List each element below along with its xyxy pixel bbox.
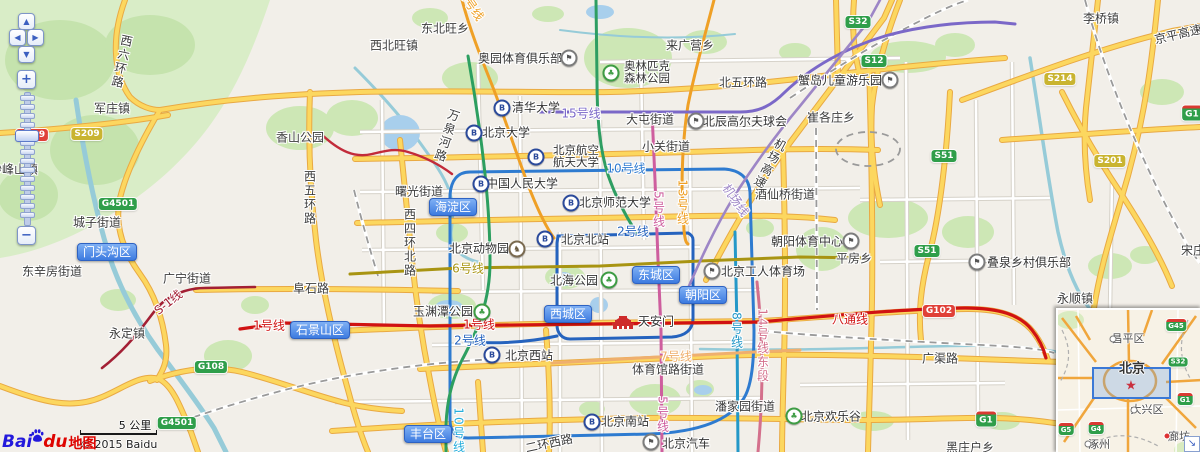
place-label: 小关街道 [642,138,690,155]
road-label: 阜石路 [293,280,329,297]
poi-label[interactable]: 奥园体育俱乐部 [478,50,562,67]
poi-subway-icon[interactable]: B [473,176,490,193]
inset-place-marker [1085,441,1092,448]
subway-line-label: 5号线 [655,396,672,434]
poi-label[interactable]: 北京汽车 [662,435,710,452]
poi-subway-icon[interactable]: B [528,149,545,166]
pan-down-button[interactable]: ▼ [18,46,35,63]
pan-left-button[interactable]: ◀ [9,29,26,46]
zoom-slider-tick [20,113,35,119]
place-label: 黑庄户乡 [946,439,994,452]
baidu-logo: Bai du 地图 [2,429,97,451]
poi-label[interactable]: 朝阳体育中心 [771,233,843,250]
inset-road-shield: G1 [1178,393,1193,405]
place-label: 来广营乡 [666,37,714,54]
subway-line-label: 15号线 [561,105,600,122]
poi-label[interactable]: 玉渊潭公园 [413,303,473,320]
zoom-slider-tick [20,158,35,164]
place-label: 酒仙桥街道 [755,186,815,203]
pan-up-button[interactable]: ▲ [18,13,35,30]
place-label: 东北旺乡 [421,20,469,37]
subway-line-label: 13号线 [675,179,692,226]
road-label: 西四环北路 [402,208,419,278]
road-label: 西五环路 [302,170,319,226]
poi-park-icon[interactable]: ♣ [601,272,618,289]
district-badge[interactable]: 石景山区 [290,321,350,339]
zoom-slider-tick [20,149,35,155]
place-label: 城子街道 [73,214,121,231]
place-label: 潘家园街道 [715,398,775,415]
place-label: 东辛房街道 [22,263,82,280]
poi-label[interactable]: 北京航空航天大学 [553,144,599,168]
place-label: 李桥镇 [1083,10,1119,27]
inset-collapse-button[interactable]: ↘ [1184,436,1200,452]
poi-label[interactable]: 北京西站 [505,347,553,364]
poi-label[interactable]: 北京南站 [601,413,649,430]
poi-flag-icon[interactable]: ⚑ [843,233,860,250]
road-shield: S209 [71,128,102,140]
zoom-slider-tick [20,212,35,218]
inset-road-shield: S32 [1169,358,1188,367]
inset-place-marker [1110,336,1117,343]
place-label: 永顺镇 [1057,290,1093,307]
overview-inset[interactable]: 北京★昌平区大兴区涿州廊坊G45S32G1G5G4 ↘ [1056,308,1200,452]
poi-park-icon[interactable]: ♣ [474,304,491,321]
logo-text-du: du [43,434,67,451]
poi-flag-icon[interactable]: ⚑ [882,72,899,89]
road-label: 北五环路 [719,74,767,91]
district-badge[interactable]: 朝阳区 [679,286,727,304]
place-label: 广宁街道 [163,270,211,287]
road-shield: G108 [195,361,227,373]
poi-label[interactable]: 北海公园 [550,272,598,289]
poi-flag-icon[interactable]: ⚑ [969,254,986,271]
poi-label[interactable]: 北京北站 [561,231,609,248]
logo-text-bai: Bai [2,434,32,451]
subway-line-label: 14号线东段 [755,308,772,383]
place-label: 大屯街道 [626,111,674,128]
place-label: 军庄镇 [94,100,130,117]
inset-road-shield: G45 [1166,319,1186,331]
poi-subway-icon[interactable]: B [466,125,483,142]
zoom-slider-tick [20,167,35,173]
subway-line-label: 10号线 [451,407,468,452]
poi-subway-icon[interactable]: B [563,195,580,212]
road-shield: G102 [923,305,955,317]
poi-flag-icon[interactable]: ⚑ [688,113,705,130]
poi-subway-icon[interactable]: B [494,100,511,117]
pan-right-button[interactable]: ▶ [27,29,44,46]
poi-label[interactable]: 蟹岛儿童游乐园 [798,72,882,89]
inset-road-shield: G5 [1059,423,1074,435]
zoom-slider-tick [20,176,35,182]
poi-flag-icon[interactable]: ⚑ [561,50,578,67]
subway-line-label: 7号线 [660,348,692,365]
district-badge[interactable]: 丰台区 [404,425,452,443]
subway-line-label: 1号线 [253,317,285,334]
poi-label[interactable]: 北京师范大学 [579,194,651,211]
poi-park-icon[interactable]: ♣ [786,408,803,425]
poi-zoo-icon[interactable]: ♞ [509,241,526,258]
road-shield: S51 [931,150,956,162]
poi-label[interactable]: 叠泉乡村俱乐部 [987,254,1071,271]
subway-line-label: 6号线 [452,260,484,277]
place-label: 西北旺镇 [370,37,418,54]
subway-line-label: 8号线 [729,312,746,350]
inset-city-star-icon: ★ [1125,379,1137,394]
road-shield: G4501 [158,417,196,429]
poi-label[interactable]: 天安门 [638,313,674,330]
poi-subway-icon[interactable]: B [484,347,501,364]
poi-label[interactable]: 北京欢乐谷 [801,408,861,425]
place-label: 香山公园 [276,129,324,146]
inset-city-label: 北京 [1119,358,1145,377]
poi-label[interactable]: 清华大学 [512,99,560,116]
subway-line-label: 5号线 [651,191,668,229]
place-label: 永定镇 [109,325,145,342]
poi-park-icon[interactable]: ♣ [603,65,620,82]
poi-flag-icon[interactable]: ⚑ [704,263,721,280]
road-shield: G1 [976,412,996,427]
zoom-out-button[interactable]: − [17,226,36,245]
poi-label[interactable]: 北京动物园 [449,240,509,257]
district-badge[interactable]: 门头沟区 [77,243,137,261]
subway-line-label: 八通线 [832,311,868,328]
zoom-slider-tick [20,104,35,110]
inset-place-marker [1131,407,1138,414]
subway-line-label: 10号线 [606,160,645,177]
zoom-slider-handle[interactable] [15,130,39,142]
poi-subway-icon[interactable]: B [537,231,554,248]
zoom-in-button[interactable]: + [17,70,36,89]
zoom-slider-tick [20,185,35,191]
place-label: 平房乡 [836,250,872,267]
road-shield: S214 [1044,73,1075,85]
road-shield: S32 [845,16,870,28]
place-label: 宋庄 [1181,242,1200,259]
subway-line-label: 2号线 [617,223,649,240]
zoom-slider-tick [20,122,35,128]
inset-road-shield: G4 [1089,422,1104,434]
zoom-slider-tick [20,95,35,101]
poi-label[interactable]: 北京工人体育场 [721,263,805,280]
subway-line-label: 2号线 [454,332,486,349]
map-canvas[interactable]: 西六环路北五环路京平高速机场高速阜石路广渠路万泉河路西五环路西四环北路二环西路军… [0,0,1200,452]
logo-text-map: 地图 [69,437,97,451]
poi-label[interactable]: 奥林匹克森林公园 [624,60,670,84]
poi-flag-icon[interactable]: ⚑ [643,434,660,451]
district-badge[interactable]: 海淀区 [429,198,477,216]
poi-tiananmen-icon[interactable] [611,315,635,329]
inset-place-marker [1164,433,1171,440]
road-shield: G1 [1182,106,1200,121]
zoom-slider-tick [20,194,35,200]
poi-label[interactable]: 中国人民大学 [486,175,558,192]
district-badge[interactable]: 西城区 [544,305,592,323]
road-shield: S12 [861,55,886,67]
road-shield: G4501 [99,198,137,210]
basemap-layer [0,0,1200,452]
place-label: 崔各庄乡 [807,109,855,126]
zoom-slider-tick [20,203,35,209]
poi-label[interactable]: 北辰高尔夫球会 [703,113,787,130]
poi-label[interactable]: 北京大学 [482,124,530,141]
place-label: 曙光街道 [395,183,443,200]
road-label: 广渠路 [922,350,958,367]
road-shield: S201 [1094,155,1125,167]
poi-subway-icon[interactable]: B [584,414,601,431]
district-badge[interactable]: 东城区 [632,266,680,284]
road-shield: S51 [914,245,939,257]
